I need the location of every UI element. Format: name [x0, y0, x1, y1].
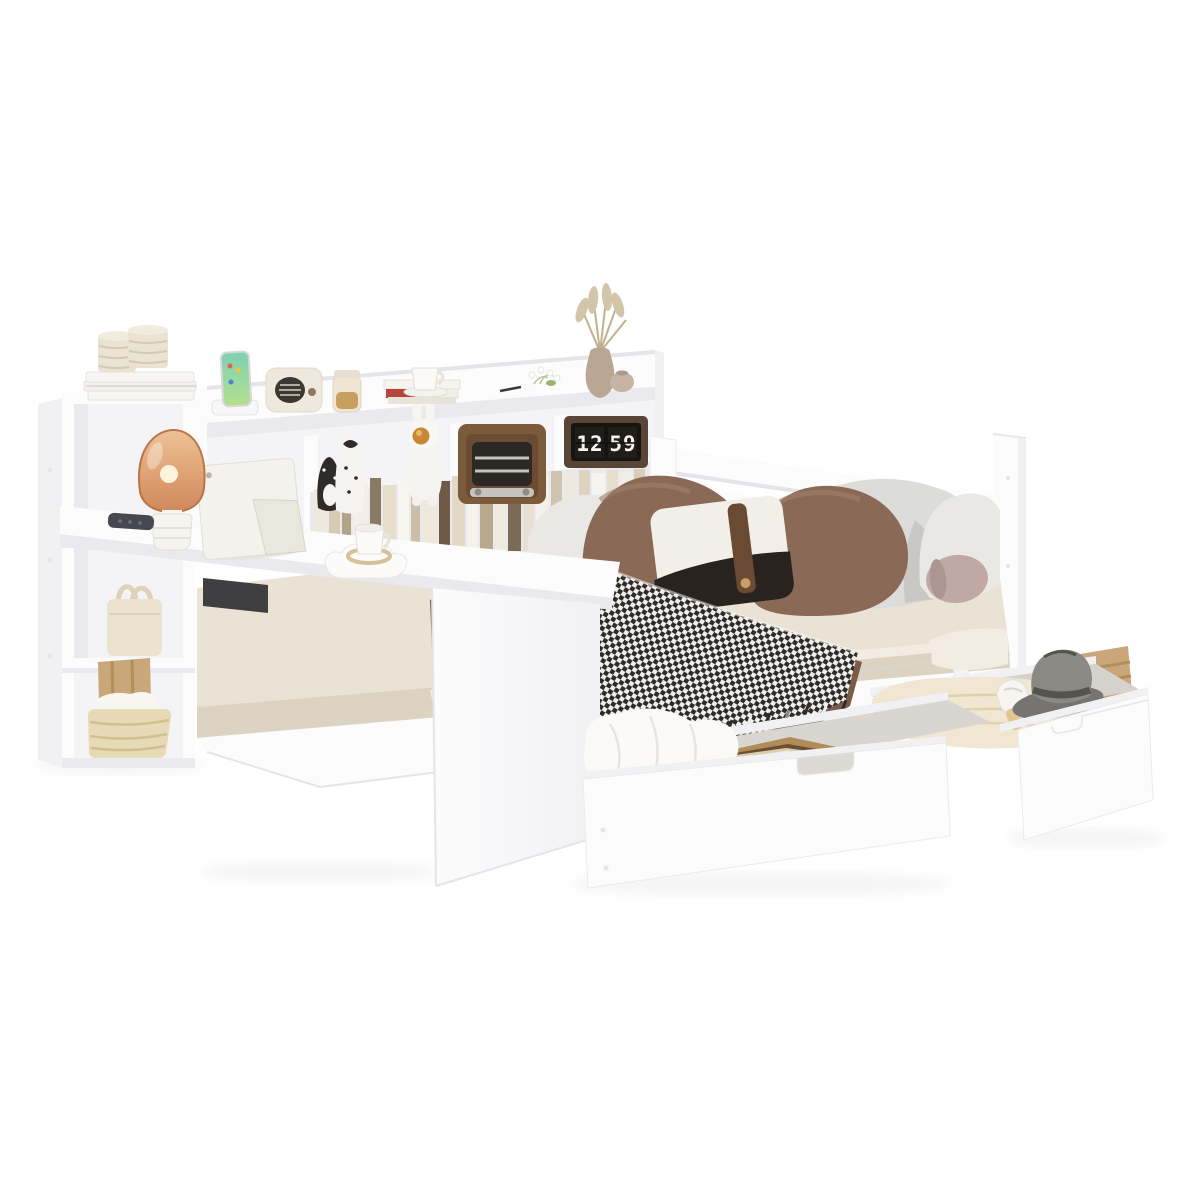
rabbit-visor	[413, 428, 430, 445]
penguin-belly	[323, 484, 337, 506]
stacked-book	[388, 397, 456, 404]
coffee-cup-rim	[355, 524, 383, 532]
tower-bottom-edge	[62, 758, 195, 768]
remote-button	[138, 521, 142, 525]
jar-contents	[336, 392, 358, 409]
speaker-knob	[308, 388, 316, 396]
retro-speaker	[266, 368, 322, 412]
rope-candles	[98, 325, 168, 372]
pampas-plume	[587, 286, 600, 315]
screw-dot	[1006, 476, 1010, 480]
flower	[529, 372, 535, 378]
pampas-plume	[601, 283, 613, 312]
remote-button	[118, 519, 122, 523]
rope-candle-top	[128, 325, 168, 335]
flower	[547, 370, 553, 376]
book-spine	[439, 481, 450, 554]
rabbit-leg	[428, 496, 437, 506]
rabbit-visor-shine	[416, 430, 422, 436]
screw-dot	[604, 866, 609, 871]
tower-side-panel	[38, 398, 62, 768]
remote-button	[128, 520, 132, 524]
flip-clock: 12 59	[564, 416, 648, 468]
screw-dot	[48, 558, 53, 563]
stacked-books-with-candles	[84, 325, 196, 400]
penguin-dot	[354, 476, 358, 480]
teacup	[412, 368, 438, 390]
penguin-dot	[347, 490, 351, 494]
flip-clock-hour: 12	[576, 432, 603, 456]
vase-body	[586, 348, 615, 399]
smartphone-on-dock	[212, 351, 258, 415]
flip-clock-minute: 59	[609, 432, 636, 456]
lamp-base	[152, 514, 192, 550]
radio-grill	[472, 442, 532, 486]
smartphone	[221, 351, 252, 406]
screw-dot	[1006, 564, 1010, 568]
flower	[538, 367, 544, 373]
flower-leaf	[546, 380, 556, 386]
stacked-book	[86, 372, 194, 382]
screw-dot	[48, 654, 53, 659]
rabbit-body	[407, 449, 442, 500]
storage-drawer-front	[583, 692, 990, 888]
penguin-dot	[344, 466, 348, 470]
handbag-body	[107, 599, 162, 656]
product-screenshot: 12 59	[0, 0, 1200, 1200]
screw-dot	[48, 468, 53, 473]
flower	[554, 375, 560, 381]
lamp-bulb	[160, 465, 178, 483]
shadow-platform	[200, 862, 440, 882]
penguin-dot	[322, 468, 325, 471]
wooden-retro-radio	[458, 424, 546, 504]
jar-lid	[334, 370, 360, 378]
tower-cubby-mid-shade	[74, 548, 88, 658]
pampas-plume	[609, 291, 627, 319]
daybed-product-photo: 12 59	[0, 0, 1200, 1200]
app-icon	[228, 364, 233, 369]
screw-dot	[601, 828, 606, 833]
app-icon	[236, 368, 241, 373]
tablet-with-kickstand	[196, 457, 306, 563]
radio-knob	[523, 489, 530, 496]
snack-jar	[333, 370, 361, 412]
round-vase-rim	[616, 371, 628, 376]
radio-knob	[475, 489, 482, 496]
tower-cubby-top-shade	[74, 404, 88, 522]
desk-side-panel	[432, 588, 600, 886]
rabbit-leg	[412, 496, 421, 506]
app-icon	[229, 380, 234, 385]
